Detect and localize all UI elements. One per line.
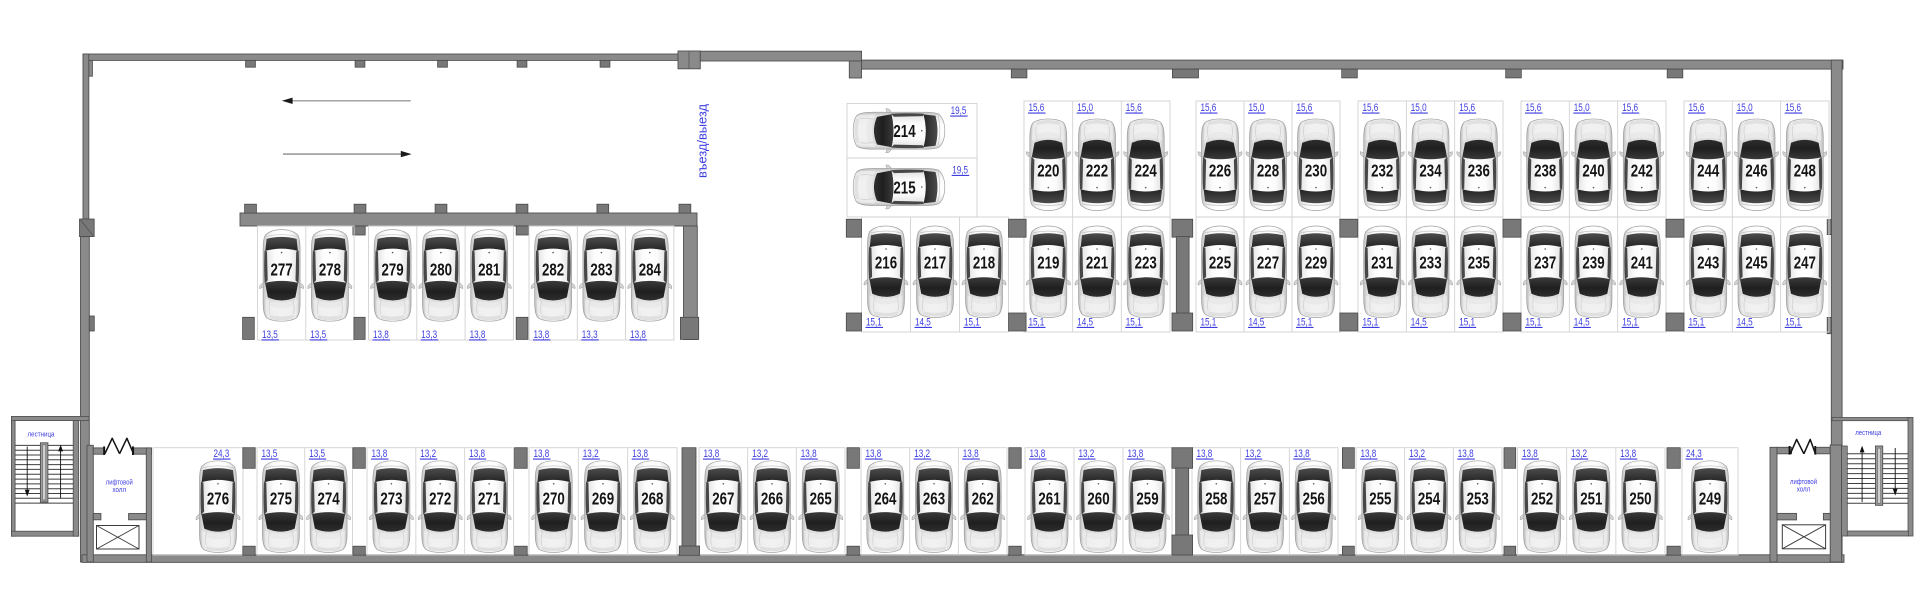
svg-text:15,1: 15,1 (1785, 316, 1801, 328)
svg-text:13,8: 13,8 (1458, 448, 1474, 460)
svg-text:13,2: 13,2 (583, 448, 599, 460)
svg-text:13,5: 13,5 (310, 329, 326, 341)
svg-text:216: 216 (875, 254, 897, 273)
svg-text:242: 242 (1631, 162, 1653, 181)
svg-text:274: 274 (318, 490, 340, 509)
svg-text:13,8: 13,8 (632, 448, 648, 460)
svg-text:13,8: 13,8 (1197, 448, 1213, 460)
svg-text:229: 229 (1305, 254, 1327, 273)
svg-text:13,8: 13,8 (1522, 448, 1538, 460)
svg-text:14,5: 14,5 (1737, 316, 1753, 328)
svg-text:255: 255 (1369, 490, 1391, 509)
svg-text:254: 254 (1418, 490, 1440, 509)
svg-text:253: 253 (1467, 490, 1489, 509)
svg-text:15,1: 15,1 (1459, 316, 1475, 328)
svg-text:13,8: 13,8 (801, 448, 817, 460)
svg-text:217: 217 (924, 254, 946, 273)
svg-text:220: 220 (1037, 162, 1059, 181)
svg-text:лифтовой: лифтовой (106, 479, 133, 487)
svg-text:239: 239 (1582, 254, 1604, 273)
svg-text:260: 260 (1087, 490, 1109, 509)
svg-text:13,3: 13,3 (421, 329, 437, 341)
svg-text:237: 237 (1534, 254, 1556, 273)
svg-text:13,2: 13,2 (1409, 448, 1425, 460)
svg-text:238: 238 (1534, 162, 1556, 181)
svg-text:262: 262 (972, 490, 994, 509)
svg-text:13,8: 13,8 (470, 329, 486, 341)
svg-text:232: 232 (1371, 162, 1393, 181)
svg-text:240: 240 (1582, 162, 1604, 181)
svg-text:14,5: 14,5 (1077, 316, 1093, 328)
svg-text:13,5: 13,5 (309, 448, 325, 460)
svg-text:15,6: 15,6 (1029, 102, 1045, 114)
svg-text:24,3: 24,3 (1686, 448, 1702, 460)
svg-text:252: 252 (1531, 490, 1553, 509)
svg-text:246: 246 (1745, 162, 1767, 181)
svg-text:273: 273 (380, 490, 402, 509)
svg-text:лестница: лестница (1855, 428, 1882, 437)
svg-text:13,8: 13,8 (704, 448, 720, 460)
svg-text:13,8: 13,8 (372, 448, 388, 460)
svg-text:230: 230 (1305, 162, 1327, 181)
svg-text:14,5: 14,5 (1411, 316, 1427, 328)
svg-text:267: 267 (712, 490, 734, 509)
svg-text:13,8: 13,8 (630, 329, 646, 341)
svg-text:15,6: 15,6 (1201, 102, 1217, 114)
svg-text:263: 263 (923, 490, 945, 509)
svg-text:256: 256 (1303, 490, 1325, 509)
svg-text:13,8: 13,8 (373, 329, 389, 341)
svg-text:15,0: 15,0 (1411, 102, 1427, 114)
svg-text:14,5: 14,5 (1249, 316, 1265, 328)
svg-text:251: 251 (1580, 490, 1602, 509)
svg-text:15,1: 15,1 (1526, 316, 1542, 328)
svg-text:226: 226 (1209, 162, 1231, 181)
svg-text:15,6: 15,6 (1297, 102, 1313, 114)
svg-text:13,2: 13,2 (1245, 448, 1261, 460)
svg-text:277: 277 (271, 261, 293, 280)
svg-text:15,1: 15,1 (1297, 316, 1313, 328)
svg-text:13,2: 13,2 (752, 448, 768, 460)
svg-text:13,8: 13,8 (534, 448, 550, 460)
svg-text:231: 231 (1371, 254, 1393, 273)
svg-text:15,6: 15,6 (1459, 102, 1475, 114)
svg-text:13,8: 13,8 (469, 448, 485, 460)
svg-text:272: 272 (429, 490, 451, 509)
svg-text:13,8: 13,8 (1128, 448, 1144, 460)
svg-text:269: 269 (592, 490, 614, 509)
svg-text:261: 261 (1038, 490, 1060, 509)
svg-text:15,1: 15,1 (1689, 316, 1705, 328)
svg-text:276: 276 (207, 490, 229, 509)
svg-text:225: 225 (1209, 254, 1231, 273)
svg-text:218: 218 (973, 254, 995, 273)
svg-text:227: 227 (1257, 254, 1279, 273)
svg-text:13,8: 13,8 (1294, 448, 1310, 460)
svg-text:13,5: 13,5 (262, 329, 278, 341)
svg-text:13,8: 13,8 (534, 329, 550, 341)
svg-text:224: 224 (1135, 162, 1157, 181)
svg-text:279: 279 (382, 261, 404, 280)
svg-text:236: 236 (1468, 162, 1490, 181)
svg-text:13,2: 13,2 (1079, 448, 1095, 460)
svg-text:243: 243 (1697, 254, 1719, 273)
svg-text:15,0: 15,0 (1249, 102, 1265, 114)
svg-text:13,2: 13,2 (914, 448, 930, 460)
svg-text:248: 248 (1794, 162, 1816, 181)
svg-text:247: 247 (1794, 254, 1816, 273)
svg-text:264: 264 (874, 490, 896, 509)
svg-text:268: 268 (641, 490, 663, 509)
svg-text:15,1: 15,1 (1201, 316, 1217, 328)
svg-text:275: 275 (270, 490, 292, 509)
svg-text:283: 283 (590, 261, 612, 280)
svg-text:15,6: 15,6 (1622, 102, 1638, 114)
svg-text:14,5: 14,5 (1574, 316, 1590, 328)
svg-text:222: 222 (1086, 162, 1108, 181)
svg-text:19,5: 19,5 (951, 105, 967, 117)
svg-text:245: 245 (1745, 254, 1767, 273)
svg-text:24,3: 24,3 (214, 448, 230, 460)
svg-text:221: 221 (1086, 254, 1108, 273)
svg-text:265: 265 (810, 490, 832, 509)
svg-text:249: 249 (1699, 490, 1721, 509)
svg-text:13,5: 13,5 (262, 448, 278, 460)
svg-text:лестница: лестница (28, 430, 56, 439)
svg-text:13,8: 13,8 (866, 448, 882, 460)
svg-text:15,6: 15,6 (1689, 102, 1705, 114)
svg-text:въезд/выезд: въезд/выезд (695, 104, 710, 178)
svg-text:266: 266 (761, 490, 783, 509)
svg-text:холл: холл (1797, 487, 1811, 494)
svg-text:284: 284 (639, 261, 661, 280)
svg-text:259: 259 (1136, 490, 1158, 509)
svg-text:214: 214 (893, 122, 915, 141)
svg-text:235: 235 (1468, 254, 1490, 273)
svg-text:холл: холл (113, 487, 127, 494)
svg-text:15,0: 15,0 (1737, 102, 1753, 114)
svg-text:13,2: 13,2 (1571, 448, 1587, 460)
svg-text:13,8: 13,8 (963, 448, 979, 460)
svg-text:15,1: 15,1 (1622, 316, 1638, 328)
svg-text:281: 281 (478, 261, 500, 280)
svg-text:13,8: 13,8 (1361, 448, 1377, 460)
svg-text:15,6: 15,6 (1526, 102, 1542, 114)
svg-text:15,6: 15,6 (1785, 102, 1801, 114)
svg-text:258: 258 (1205, 490, 1227, 509)
svg-text:219: 219 (1037, 254, 1059, 273)
svg-text:15,1: 15,1 (964, 316, 980, 328)
svg-text:13,8: 13,8 (1030, 448, 1046, 460)
svg-text:241: 241 (1631, 254, 1653, 273)
svg-text:250: 250 (1629, 490, 1651, 509)
svg-text:13,3: 13,3 (582, 329, 598, 341)
svg-text:271: 271 (478, 490, 500, 509)
svg-text:234: 234 (1419, 162, 1441, 181)
svg-text:19,5: 19,5 (952, 164, 968, 176)
svg-text:244: 244 (1697, 162, 1719, 181)
svg-text:15,0: 15,0 (1077, 102, 1093, 114)
svg-text:15,1: 15,1 (1029, 316, 1045, 328)
svg-text:15,6: 15,6 (1126, 102, 1142, 114)
svg-text:лифтовой: лифтовой (1790, 478, 1817, 486)
svg-text:280: 280 (430, 261, 452, 280)
svg-text:223: 223 (1135, 254, 1157, 273)
svg-text:15,1: 15,1 (866, 316, 882, 328)
svg-text:215: 215 (893, 179, 915, 198)
svg-text:233: 233 (1419, 254, 1441, 273)
svg-text:13,2: 13,2 (420, 448, 436, 460)
svg-text:15,6: 15,6 (1363, 102, 1379, 114)
svg-text:14,5: 14,5 (915, 316, 931, 328)
svg-text:257: 257 (1254, 490, 1276, 509)
svg-text:15,0: 15,0 (1574, 102, 1590, 114)
svg-text:278: 278 (319, 261, 341, 280)
svg-text:13,8: 13,8 (1620, 448, 1636, 460)
svg-text:228: 228 (1257, 162, 1279, 181)
svg-text:15,1: 15,1 (1363, 316, 1379, 328)
svg-text:282: 282 (542, 261, 564, 280)
svg-text:15,1: 15,1 (1126, 316, 1142, 328)
svg-text:270: 270 (543, 490, 565, 509)
